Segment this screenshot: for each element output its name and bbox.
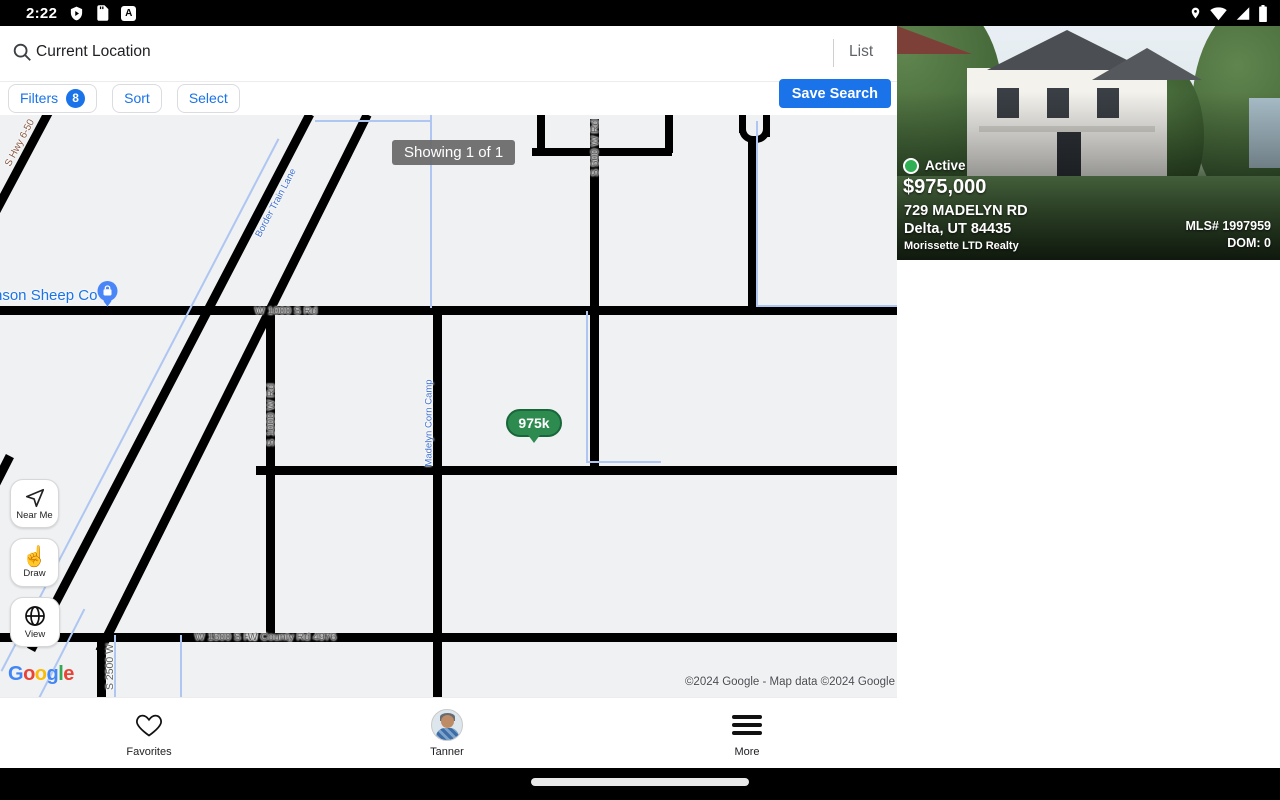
gesture-bar bbox=[0, 768, 1280, 800]
road-label-county: W County Rd 4976 bbox=[248, 631, 337, 643]
clock: 2:22 bbox=[26, 5, 57, 22]
google-letter: g bbox=[47, 663, 59, 685]
sort-label: Sort bbox=[124, 90, 150, 106]
map-canvas[interactable]: S Hwy 6-50 Border Train Lane W 1000 S Rd… bbox=[0, 115, 897, 697]
avatar bbox=[431, 709, 463, 741]
poi-label: nson Sheep Co bbox=[0, 287, 97, 304]
app-screen: 2:22 A bbox=[0, 0, 1280, 800]
nav-item-favorites[interactable]: Favorites bbox=[89, 708, 209, 758]
active-status-icon bbox=[903, 158, 919, 174]
globe-icon bbox=[23, 604, 47, 628]
status-badge: Active bbox=[925, 158, 966, 173]
select-button[interactable]: Select bbox=[177, 84, 240, 113]
hamburger-menu-icon bbox=[732, 715, 762, 735]
listing-price: $975,000 bbox=[903, 176, 986, 199]
draw-label: Draw bbox=[23, 568, 45, 579]
price-map-marker[interactable]: 975k bbox=[506, 409, 562, 437]
filter-row: Filters 8 Sort Select bbox=[8, 81, 240, 115]
map-road bbox=[433, 306, 442, 697]
filters-count-badge: 8 bbox=[66, 89, 85, 108]
filters-label: Filters bbox=[20, 90, 58, 106]
near-me-label: Near Me bbox=[16, 510, 52, 521]
draw-button[interactable]: ☝ Draw bbox=[10, 538, 59, 587]
listing-brokerage: Morissette LTD Realty bbox=[904, 240, 1019, 252]
filters-button[interactable]: Filters 8 bbox=[8, 84, 97, 113]
map-parcel-line bbox=[1, 138, 280, 671]
map-parcel-line bbox=[315, 120, 431, 122]
road-label-w1000: W 1000 S Rd bbox=[255, 305, 317, 317]
profile-label: Tanner bbox=[430, 746, 464, 758]
near-me-button[interactable]: Near Me bbox=[10, 479, 59, 528]
listing-card[interactable]: Active $975,000 729 MADELYN RD Delta, UT… bbox=[897, 26, 1280, 260]
search-input[interactable]: Current Location bbox=[36, 43, 151, 61]
map-parcel-line bbox=[756, 305, 897, 307]
road-label-madelyn: Madelyn Corn Camp bbox=[424, 379, 435, 466]
battery-icon bbox=[1258, 5, 1268, 22]
map-road bbox=[96, 115, 372, 653]
listing-dom: DOM: 0 bbox=[1227, 236, 1271, 250]
divider bbox=[833, 39, 834, 67]
avatar-face bbox=[441, 715, 454, 728]
bottom-nav: Favorites Tanner More bbox=[0, 697, 897, 769]
map-road bbox=[665, 115, 673, 153]
map-road bbox=[0, 633, 897, 642]
map-road bbox=[0, 306, 897, 315]
google-logo: Google bbox=[8, 663, 74, 686]
status-bar-right bbox=[1189, 0, 1268, 26]
status-bar: 2:22 A bbox=[0, 0, 1280, 26]
map-road bbox=[537, 115, 545, 156]
search-row: Current Location List bbox=[0, 26, 897, 82]
avatar-shirt bbox=[436, 728, 459, 741]
listing-address-line2: Delta, UT 84435 bbox=[904, 221, 1011, 237]
wifi-icon bbox=[1209, 6, 1228, 21]
search-icon bbox=[11, 41, 33, 68]
google-letter: G bbox=[8, 663, 23, 685]
map-road bbox=[748, 141, 756, 311]
save-search-button[interactable]: Save Search bbox=[779, 79, 891, 108]
map-parcel-line bbox=[756, 121, 758, 307]
google-letter: o bbox=[23, 663, 35, 685]
map-copyright: ©2024 Google - Map data ©2024 Google bbox=[685, 676, 895, 688]
navigation-arrow-icon bbox=[24, 487, 46, 509]
road-label-s2500w: S 2500 W bbox=[104, 644, 116, 690]
listing-mls-number: MLS# 1997959 bbox=[1186, 219, 1271, 233]
app-letter-icon: A bbox=[121, 6, 136, 21]
pointing-hand-icon: ☝ bbox=[22, 547, 47, 567]
map-road bbox=[256, 466, 897, 475]
sim-card-icon bbox=[96, 5, 109, 21]
view-button[interactable]: View bbox=[10, 597, 60, 647]
list-view-toggle[interactable]: List bbox=[849, 43, 873, 61]
sort-button[interactable]: Sort bbox=[112, 84, 162, 113]
google-letter: o bbox=[35, 663, 47, 685]
map-parcel-line bbox=[180, 635, 182, 697]
road-label-s500w: S 500 W Rd bbox=[589, 120, 601, 177]
heart-icon bbox=[134, 708, 164, 742]
favorites-label: Favorites bbox=[126, 746, 171, 758]
nav-item-profile[interactable]: Tanner bbox=[387, 708, 507, 758]
map-road bbox=[532, 148, 672, 156]
cellular-signal-icon bbox=[1235, 6, 1251, 21]
shop-pin-icon[interactable] bbox=[97, 281, 118, 313]
search-header: Current Location List Filters 8 Sort Sel… bbox=[0, 26, 897, 115]
map-road bbox=[266, 306, 275, 642]
status-bar-left: 2:22 A bbox=[26, 0, 136, 26]
location-icon bbox=[1189, 5, 1202, 21]
nav-item-more[interactable]: More bbox=[687, 708, 807, 758]
map-road bbox=[739, 123, 770, 143]
results-panel: Active $975,000 729 MADELYN RD Delta, UT… bbox=[897, 26, 1280, 768]
map-parcel-line bbox=[588, 461, 661, 463]
play-protect-icon bbox=[69, 5, 84, 22]
map-parcel-line bbox=[586, 311, 588, 463]
road-label-s1000w: S 1000 W Rd bbox=[265, 384, 277, 446]
select-label: Select bbox=[189, 90, 228, 106]
listing-address-line1: 729 MADELYN RD bbox=[904, 203, 1028, 219]
google-letter: e bbox=[63, 663, 74, 685]
gesture-handle[interactable] bbox=[531, 778, 749, 786]
view-label: View bbox=[25, 629, 45, 640]
results-count-badge: Showing 1 of 1 bbox=[392, 140, 515, 165]
more-label: More bbox=[734, 746, 759, 758]
